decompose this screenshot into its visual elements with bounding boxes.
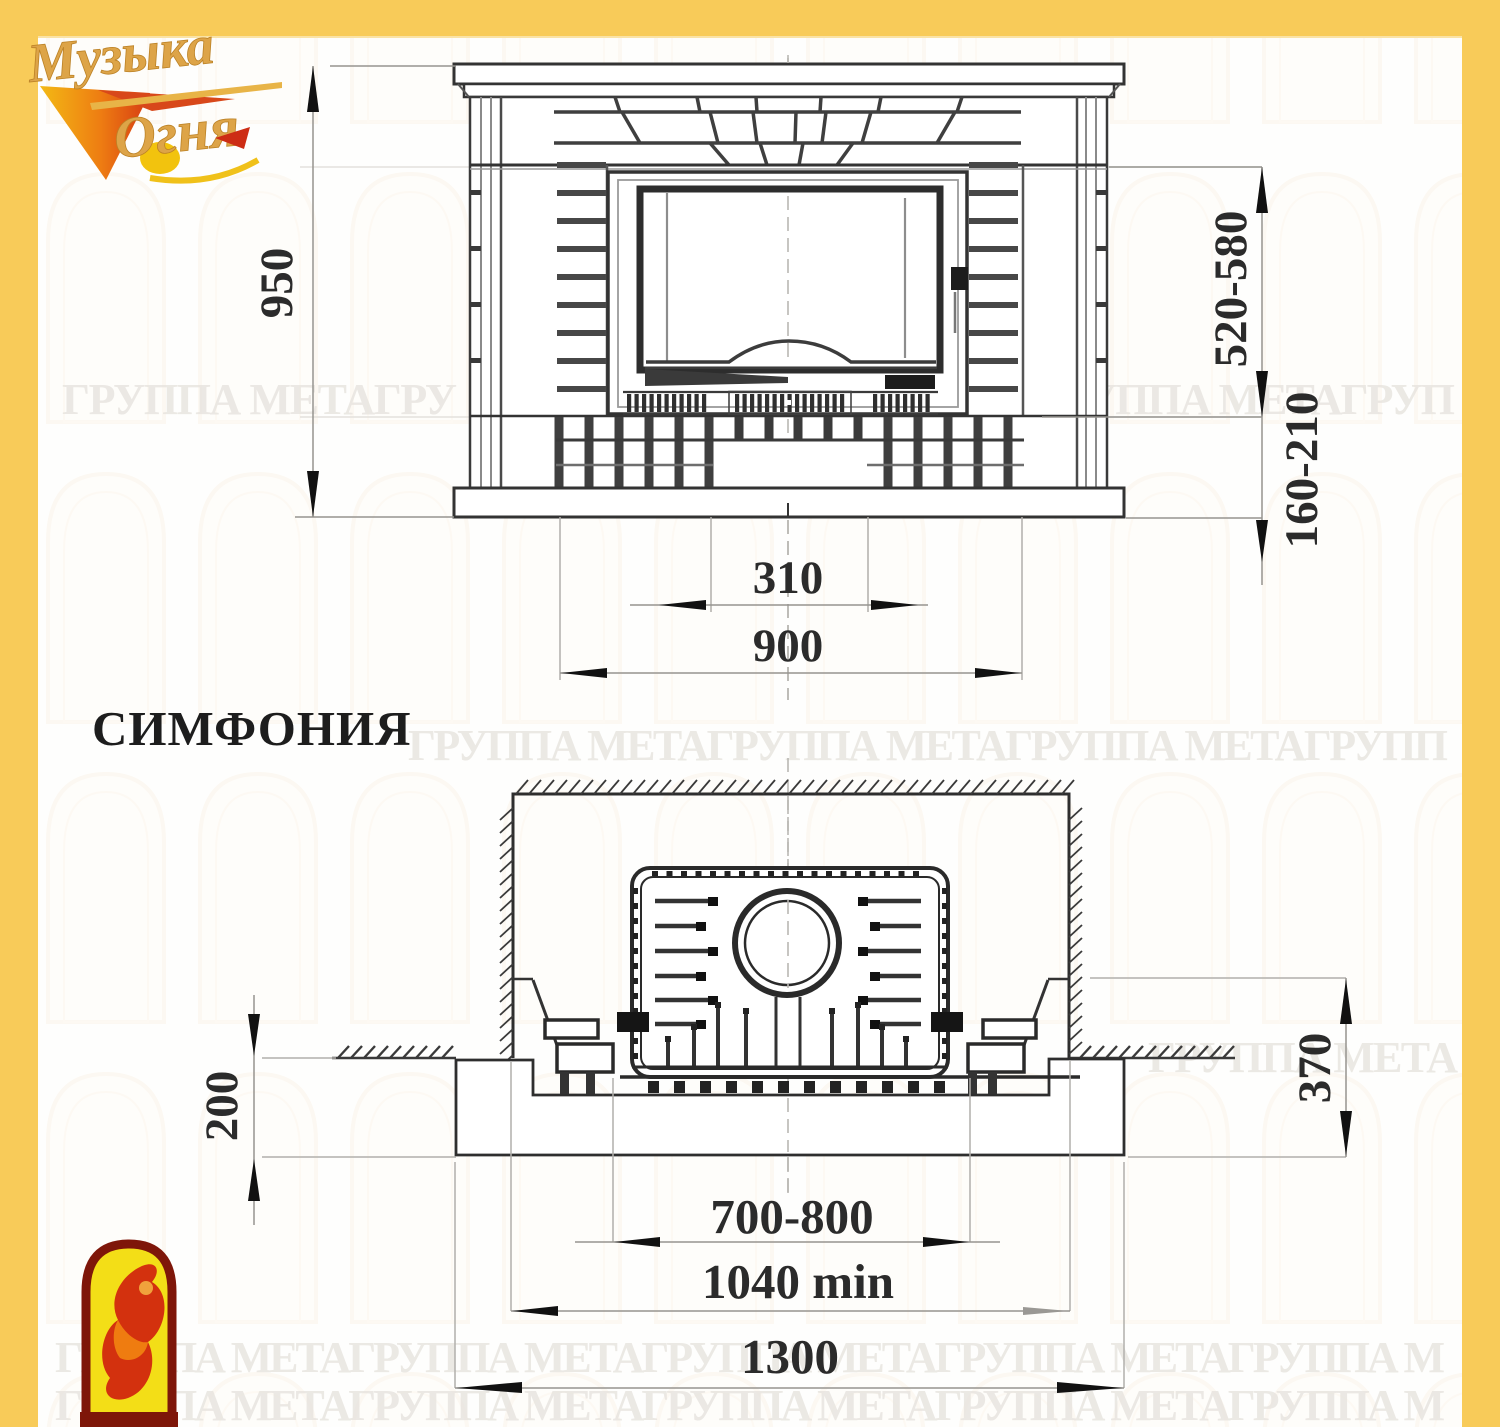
svg-text:700-800: 700-800 bbox=[710, 1189, 873, 1244]
svg-text:900: 900 bbox=[753, 620, 824, 672]
svg-text:310: 310 bbox=[753, 552, 824, 604]
svg-text:1040 min: 1040 min bbox=[702, 1254, 894, 1309]
svg-text:200: 200 bbox=[196, 1071, 248, 1142]
svg-text:СИМФОНИЯ: СИМФОНИЯ bbox=[92, 701, 412, 756]
svg-text:950: 950 bbox=[251, 248, 303, 319]
svg-text:ГРУППА МЕТАГРУППА МЕТАГРУППА М: ГРУППА МЕТАГРУППА МЕТАГРУППА МЕТАГРУПП bbox=[408, 721, 1448, 770]
svg-text:160-210: 160-210 bbox=[1276, 392, 1328, 549]
svg-text:Огня: Огня bbox=[111, 93, 242, 171]
svg-text:520-580: 520-580 bbox=[1205, 211, 1257, 368]
svg-text:1300: 1300 bbox=[741, 1329, 839, 1384]
svg-text:370: 370 bbox=[1289, 1033, 1341, 1104]
